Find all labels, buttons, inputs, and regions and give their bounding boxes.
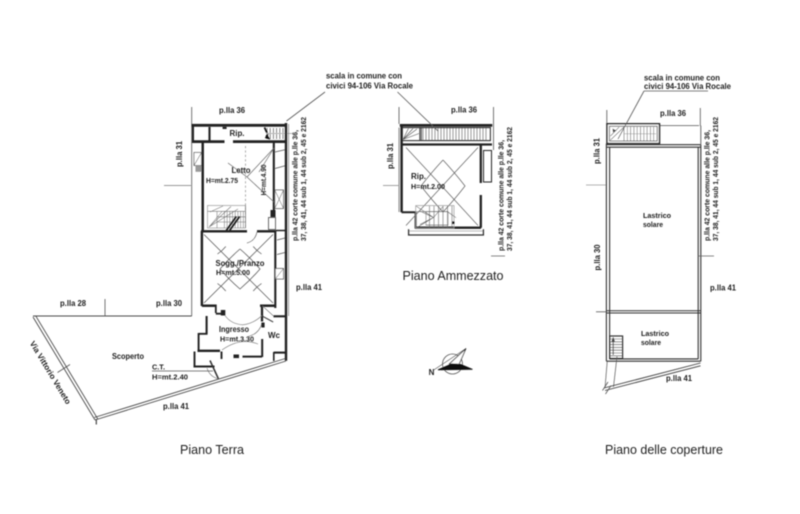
svg-text:Rip.: Rip. — [230, 129, 245, 138]
svg-text:C.T.: C.T. — [152, 363, 165, 372]
svg-text:p.lla 30: p.lla 30 — [593, 244, 602, 271]
svg-text:p.lla 41: p.lla 41 — [710, 284, 737, 293]
svg-text:N: N — [429, 368, 435, 377]
svg-text:p.lla 36: p.lla 36 — [219, 106, 246, 115]
svg-text:H=mt.2.40: H=mt.2.40 — [152, 373, 188, 382]
svg-text:H=mt.2.75: H=mt.2.75 — [206, 176, 238, 185]
svg-text:Lastrico: Lastrico — [641, 329, 669, 338]
svg-text:scala in comune con: scala in comune con — [326, 72, 402, 81]
svg-text:H=mt.4.90: H=mt.4.90 — [259, 165, 268, 196]
svg-text:p.lla 36: p.lla 36 — [451, 106, 478, 115]
svg-text:Lastrico: Lastrico — [643, 211, 671, 220]
svg-text:p.lla 28: p.lla 28 — [60, 299, 87, 308]
svg-text:p.lla 41: p.lla 41 — [296, 283, 323, 292]
svg-text:solare: solare — [641, 338, 661, 347]
svg-text:H=mt.5.00: H=mt.5.00 — [216, 268, 250, 277]
svg-text:Ingresso: Ingresso — [219, 324, 249, 334]
svg-text:Piano Ammezzato: Piano Ammezzato — [403, 269, 504, 283]
svg-text:Rip.: Rip. — [411, 172, 426, 181]
svg-text:p.lla 42 corte comune alle p.l: p.lla 42 corte comune alle p.lle 36, — [293, 130, 300, 241]
svg-text:37, 38, 41, 44 sub 1, 44 sub 2: 37, 38, 41, 44 sub 1, 44 sub 2, 45 e 216… — [301, 117, 308, 241]
svg-text:p.lla 31: p.lla 31 — [386, 142, 395, 169]
svg-text:Sogg./Pranzo: Sogg./Pranzo — [216, 258, 265, 268]
svg-text:Wc: Wc — [268, 330, 280, 340]
svg-text:H=mt.2.00: H=mt.2.00 — [411, 182, 445, 191]
svg-text:p.lla 42 corte comune alle p.l: p.lla 42 corte comune alle p.lle 36, — [705, 130, 712, 241]
svg-text:p.lla 31: p.lla 31 — [175, 140, 184, 167]
svg-text:Letto: Letto — [232, 165, 251, 175]
svg-text:Piano delle coperture: Piano delle coperture — [605, 443, 723, 457]
svg-text:p.lla 31: p.lla 31 — [593, 137, 602, 164]
svg-text:Scoperto: Scoperto — [112, 351, 144, 361]
svg-text:p.lla 41: p.lla 41 — [163, 402, 190, 411]
svg-text:solare: solare — [643, 220, 663, 229]
svg-text:p.lla 36: p.lla 36 — [660, 109, 687, 118]
svg-text:p.lla 30: p.lla 30 — [156, 299, 183, 308]
svg-text:37, 38, 41, 44 sub 1, 44 sub 2: 37, 38, 41, 44 sub 1, 44 sub 2, 45 e 216… — [507, 127, 514, 251]
svg-text:civici 94-106 Via Rocale: civici 94-106 Via Rocale — [644, 82, 732, 91]
svg-text:p.lla 42 corte comune alle p.l: p.lla 42 corte comune alle p.lle 36, — [499, 140, 506, 251]
svg-text:p.lla 41: p.lla 41 — [666, 374, 693, 383]
svg-text:civici 94-106 Via Rocale: civici 94-106 Via Rocale — [326, 82, 414, 91]
svg-text:H=mt.3.30: H=mt.3.30 — [220, 335, 254, 344]
svg-text:37, 38, 41, 44 sub 1, 44 sub 2: 37, 38, 41, 44 sub 1, 44 sub 2, 45 e 216… — [713, 117, 720, 241]
svg-text:Piano Terra: Piano Terra — [180, 443, 244, 457]
